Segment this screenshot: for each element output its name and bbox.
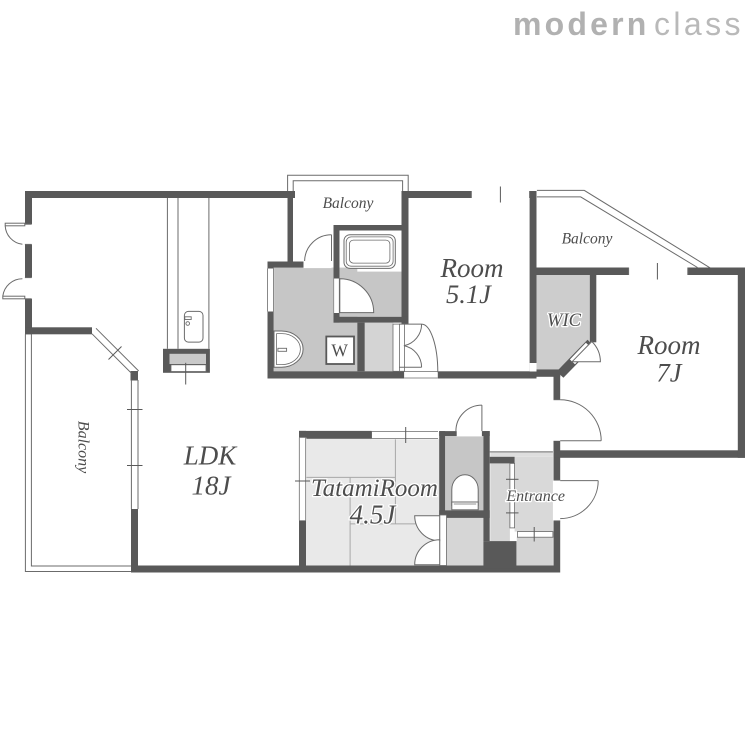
svg-text:Entrance: Entrance [505, 488, 565, 505]
svg-text:W: W [331, 340, 348, 360]
svg-text:18J: 18J [192, 471, 233, 501]
svg-text:modern: modern [513, 6, 650, 42]
svg-text:Balcony: Balcony [562, 230, 613, 247]
svg-text:Balcony: Balcony [75, 421, 92, 474]
svg-text:5.1J: 5.1J [446, 279, 492, 309]
svg-text:class: class [654, 6, 744, 42]
svg-text:WIC: WIC [547, 311, 582, 331]
svg-text:LDK: LDK [183, 441, 239, 471]
svg-text:4.5J: 4.5J [350, 500, 398, 530]
svg-text:TatamiRoom: TatamiRoom [311, 475, 438, 502]
svg-text:7J: 7J [656, 358, 682, 388]
svg-text:Balcony: Balcony [323, 195, 374, 212]
svg-text:Room: Room [637, 330, 701, 360]
